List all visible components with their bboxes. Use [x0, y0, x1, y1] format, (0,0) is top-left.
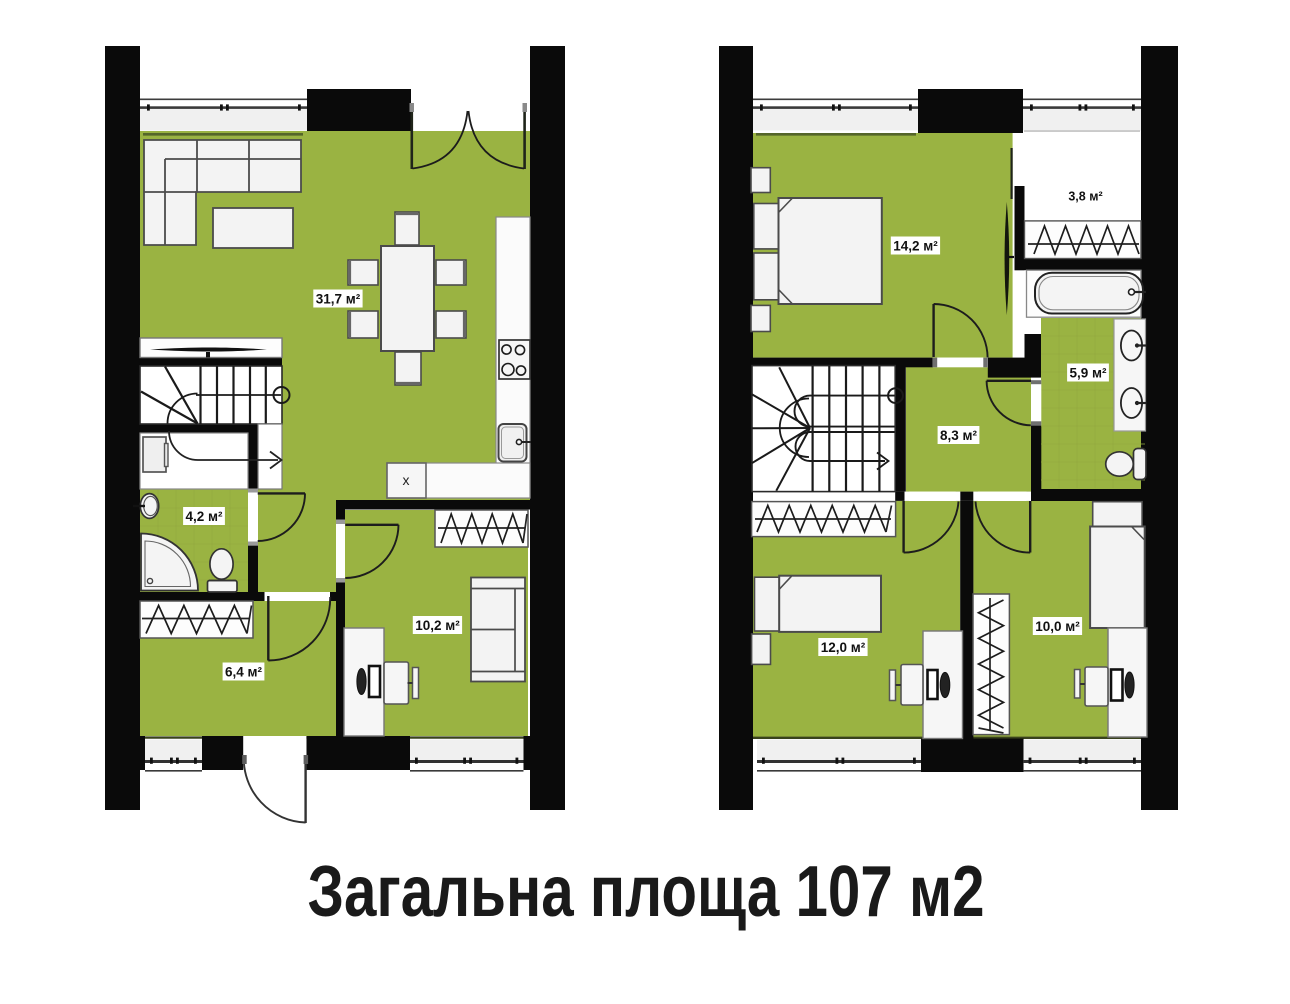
svg-text:10,2 м²: 10,2 м² [415, 618, 460, 633]
svg-text:6,4 м²: 6,4 м² [225, 664, 263, 679]
svg-text:Загальна площа 107 м2: Загальна площа 107 м2 [308, 852, 985, 932]
svg-text:31,7 м²: 31,7 м² [316, 291, 361, 306]
svg-text:14,2 м²: 14,2 м² [893, 238, 938, 253]
svg-text:x: x [403, 472, 410, 488]
svg-text:8,3 м²: 8,3 м² [940, 428, 978, 443]
svg-text:3,8 м²: 3,8 м² [1068, 189, 1102, 203]
svg-text:12,0 м²: 12,0 м² [821, 640, 866, 655]
svg-text:5,9 м²: 5,9 м² [1070, 365, 1108, 380]
svg-text:4,2 м²: 4,2 м² [186, 509, 224, 524]
svg-text:10,0 м²: 10,0 м² [1035, 619, 1080, 634]
